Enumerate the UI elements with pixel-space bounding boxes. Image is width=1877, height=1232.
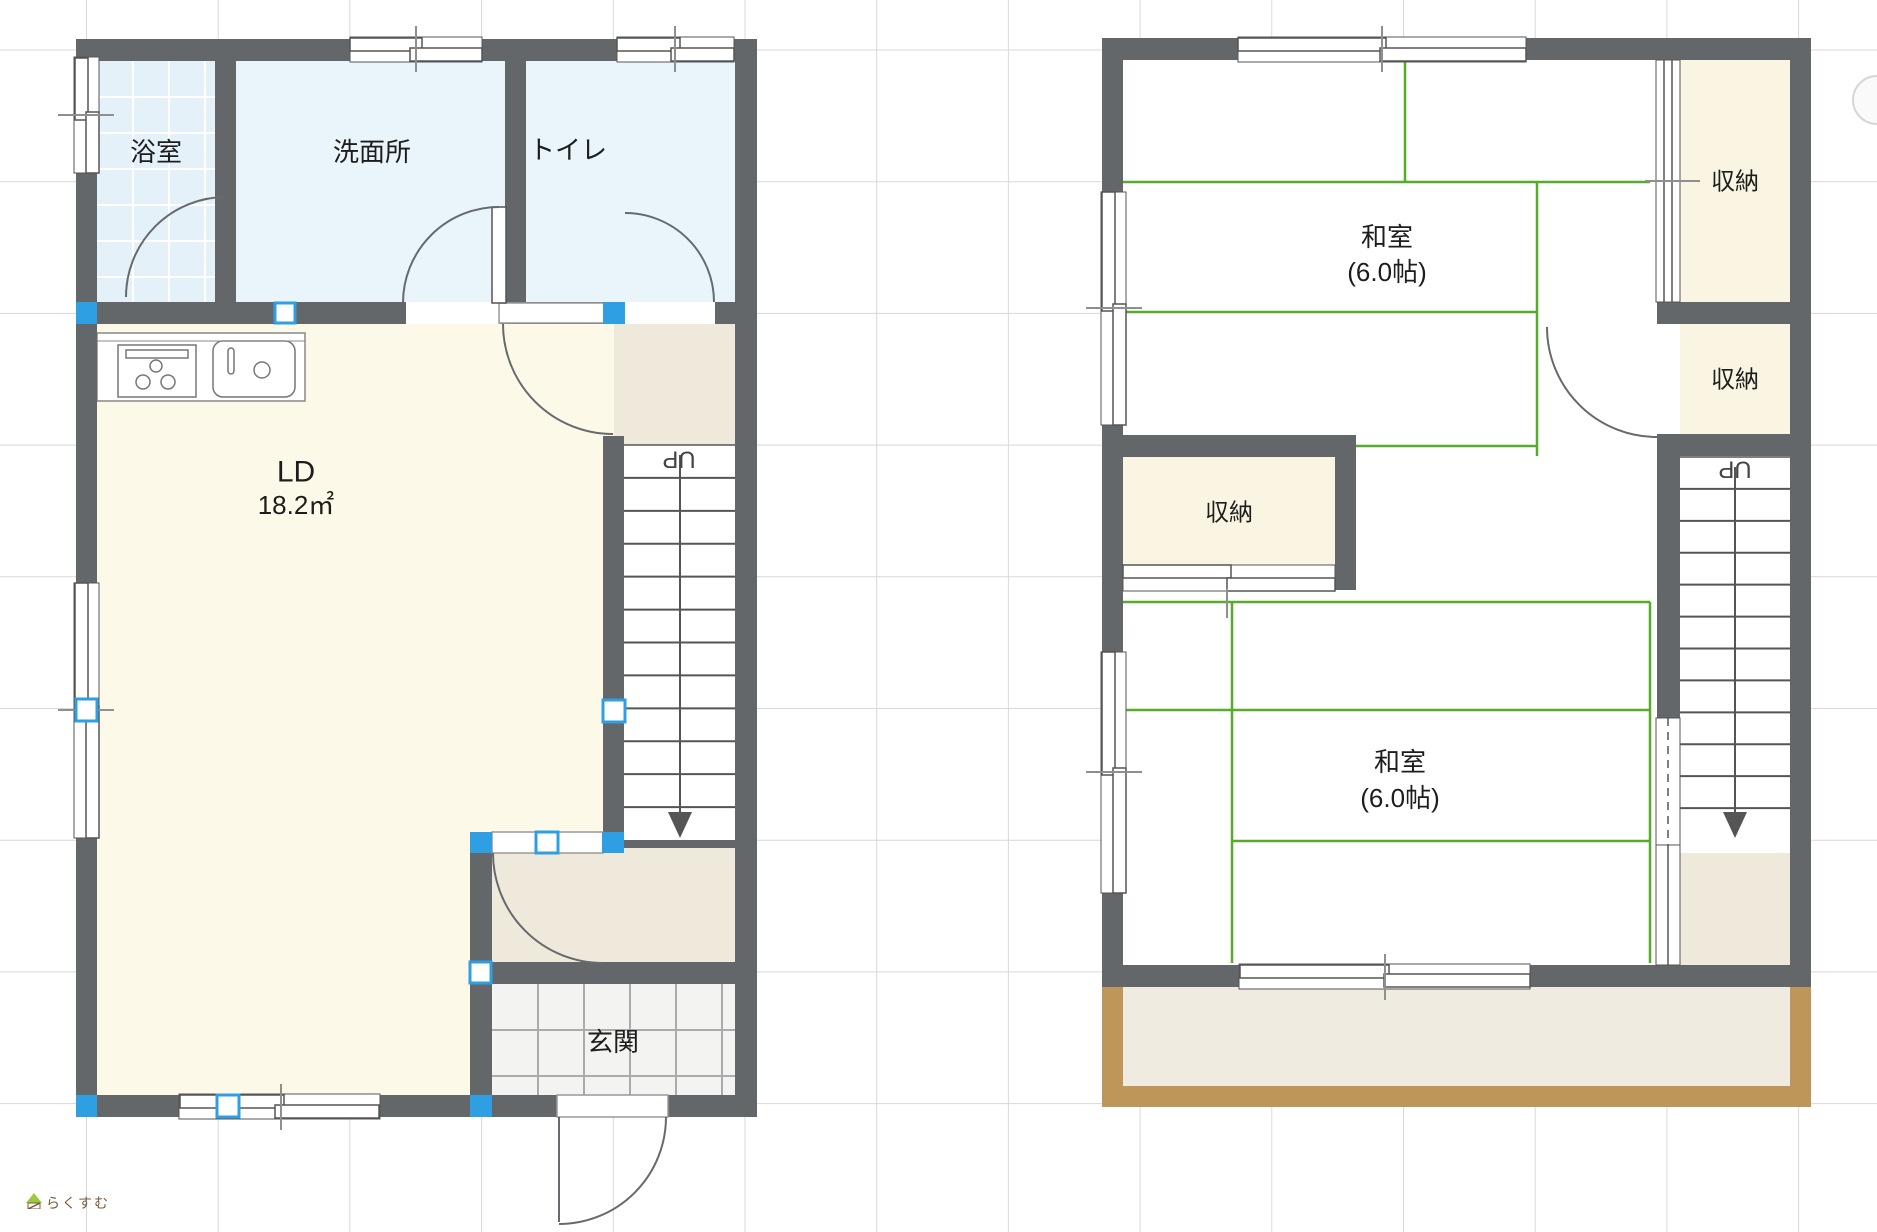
label-washitsu-1-size: (6.0帖)	[1347, 257, 1426, 287]
selection-handle[interactable]	[470, 1095, 492, 1117]
kitchen-counter-part	[228, 348, 234, 374]
kitchen-counter-part	[126, 350, 188, 358]
selection-handle[interactable]	[603, 700, 625, 722]
balcony-floor[interactable]	[1123, 987, 1790, 1086]
floor-plan-canvas: UPUP浴室洗面所トイレLD18.2㎡玄関和室(6.0帖)和室(6.0帖)収納収…	[0, 0, 1877, 1232]
label-ld: LD	[277, 456, 315, 489]
label-washroom: 洗面所	[333, 137, 411, 167]
stairs-1f-up-label: UP	[662, 446, 695, 473]
room-washroom[interactable]	[236, 61, 505, 302]
window-left-bath-sash	[75, 58, 88, 120]
selection-handle[interactable]	[470, 962, 491, 983]
door-arc-entrance[interactable]	[559, 1117, 666, 1224]
wall-2f-stair-left[interactable]	[1657, 456, 1680, 718]
window-2f-top-sash	[1238, 38, 1386, 51]
label-toilet: トイレ	[529, 135, 607, 165]
room-stair-bottom-2f[interactable]	[1680, 853, 1790, 965]
wall-bath-wash[interactable]	[215, 61, 236, 302]
kitchen-counter-burner	[136, 375, 150, 389]
kitchen-counter-burner	[254, 362, 270, 378]
label-ld-area: 18.2㎡	[258, 490, 335, 520]
selection-handle[interactable]	[602, 832, 624, 853]
window-left-ld-sash	[75, 583, 88, 714]
app-logo-text: らくすむ	[46, 1193, 110, 1213]
app-logo[interactable]: らくすむ	[26, 1193, 110, 1213]
selection-handle[interactable]	[603, 302, 625, 324]
wall-1f-left[interactable]	[76, 39, 97, 1117]
wall-2f-right[interactable]	[1790, 38, 1811, 987]
sliding-door-closet3-panel	[1227, 578, 1335, 591]
wall-closet3-right[interactable]	[1335, 435, 1356, 590]
selection-handle[interactable]	[76, 1095, 97, 1117]
wall-wash-toilet[interactable]	[505, 61, 526, 302]
sliding-door-closet3-panel	[1123, 565, 1231, 578]
opening-toilet-door[interactable]	[625, 302, 715, 324]
selection-handle[interactable]	[217, 1095, 239, 1117]
door-leaf-washroom[interactable]	[492, 207, 506, 303]
wall-1f-right[interactable]	[735, 39, 757, 1117]
wall-closet1-bottom[interactable]	[1657, 302, 1790, 324]
selection-handle[interactable]	[536, 832, 558, 853]
window-2f-left-a-sash	[1113, 304, 1126, 425]
window-left-ld-sash	[86, 706, 99, 838]
door-leaf-ld-hall[interactable]	[499, 303, 614, 323]
wall-stair-foot[interactable]	[613, 840, 756, 848]
selection-handle[interactable]	[470, 832, 492, 853]
window-2f-top-sash	[1380, 48, 1526, 61]
wall-closet3-top[interactable]	[1102, 435, 1356, 457]
selection-handle[interactable]	[76, 699, 97, 721]
window-top-toilet-sash	[671, 48, 734, 61]
selection-handle[interactable]	[76, 302, 97, 324]
app-logo-icon	[26, 1195, 42, 1211]
selection-handle[interactable]	[275, 303, 295, 323]
room-toilet[interactable]	[526, 61, 735, 302]
room-upper-landing[interactable]	[614, 324, 735, 445]
label-closet-2: 収納	[1711, 367, 1759, 394]
label-genkan: 玄関	[587, 1027, 639, 1057]
window-2f-left-b-sash	[1102, 652, 1115, 775]
wall-ld-stairs[interactable]	[603, 436, 624, 853]
window-left-bath-sash	[86, 112, 99, 173]
opening-closet2-door[interactable]	[1657, 324, 1680, 434]
wall-hall-genkan[interactable]	[470, 962, 756, 984]
window-2f-left-a-sash	[1102, 192, 1115, 311]
window-bottom-ld-sash	[275, 1105, 379, 1118]
floating-button[interactable]	[1853, 76, 1877, 124]
stairs-2f-up-label: UP	[1718, 456, 1751, 483]
window-2f-bottom-sash	[1384, 974, 1530, 987]
window-top-wash-sash	[410, 48, 482, 61]
kitchen-counter-burner	[150, 360, 162, 372]
label-closet-3: 収納	[1205, 500, 1253, 527]
label-washitsu-2: 和室	[1374, 747, 1426, 777]
label-washitsu-2-size: (6.0帖)	[1360, 783, 1439, 813]
opening-entrance[interactable]	[557, 1095, 668, 1117]
room-lower-hall[interactable]	[492, 848, 735, 963]
window-2f-bottom-sash	[1240, 965, 1389, 978]
opening-washroom-door[interactable]	[406, 302, 500, 324]
plan-svg: UPUP浴室洗面所トイレLD18.2㎡玄関和室(6.0帖)和室(6.0帖)収納収…	[0, 0, 1877, 1232]
label-bathroom: 浴室	[130, 137, 182, 167]
label-closet-1: 収納	[1711, 169, 1759, 196]
kitchen-counter-burner	[161, 375, 175, 389]
window-2f-left-b-sash	[1113, 768, 1126, 893]
wall-closet2-bottom[interactable]	[1657, 434, 1790, 456]
label-washitsu-1: 和室	[1361, 222, 1413, 252]
balcony-edge-bottom[interactable]	[1102, 1086, 1811, 1107]
